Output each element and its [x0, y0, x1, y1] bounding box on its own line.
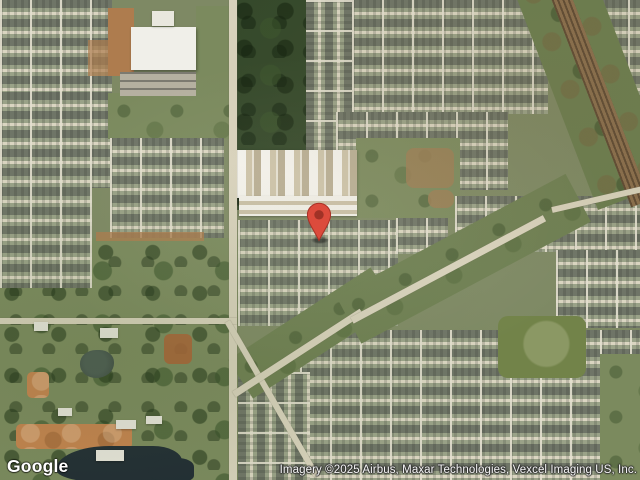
- building-shed-2: [58, 408, 72, 416]
- terrain-grass-midleft: [108, 93, 234, 139]
- terrain-residential-topleft-b: [0, 92, 112, 188]
- road-main-vertical: [229, 0, 237, 480]
- building-school-annex: [152, 11, 174, 26]
- terrain-forest: [236, 0, 312, 158]
- terrain-grass-rightedge: [600, 354, 640, 480]
- terrain-park: [498, 316, 586, 378]
- building-storage-facility: [237, 150, 357, 198]
- building-school: [131, 27, 196, 70]
- terrain-residential-topright-a: [352, 0, 548, 114]
- terrain-residential-midleft: [110, 138, 224, 238]
- building-shed-3: [146, 416, 162, 424]
- google-watermark[interactable]: Google: [7, 456, 68, 477]
- terrain-residential-left: [0, 188, 92, 288]
- terrain-residential-bottomright: [300, 330, 640, 480]
- terrain-dirt-field-small: [27, 372, 49, 398]
- building-storage-facility-south: [239, 196, 357, 216]
- terrain-dirt-patch-top2: [88, 40, 110, 76]
- building-shed-4: [34, 322, 48, 331]
- terrain-dirt-track: [96, 232, 204, 241]
- building-shed-5: [100, 328, 118, 338]
- building-lake-house: [96, 450, 124, 461]
- parking-lot-school: [120, 72, 196, 96]
- location-pin-icon[interactable]: [306, 202, 332, 242]
- terrain-bare-patch-a: [406, 148, 454, 188]
- satellite-map[interactable]: Google Imagery ©2025 Airbus, Maxar Techn…: [0, 0, 640, 480]
- terrain-red-dirt: [164, 334, 192, 364]
- lake-arm: [148, 458, 194, 480]
- imagery-attribution: Imagery ©2025 Airbus, Maxar Technologies…: [280, 464, 637, 476]
- terrain-bare-patch-b: [428, 190, 454, 208]
- building-shed-1: [116, 420, 136, 429]
